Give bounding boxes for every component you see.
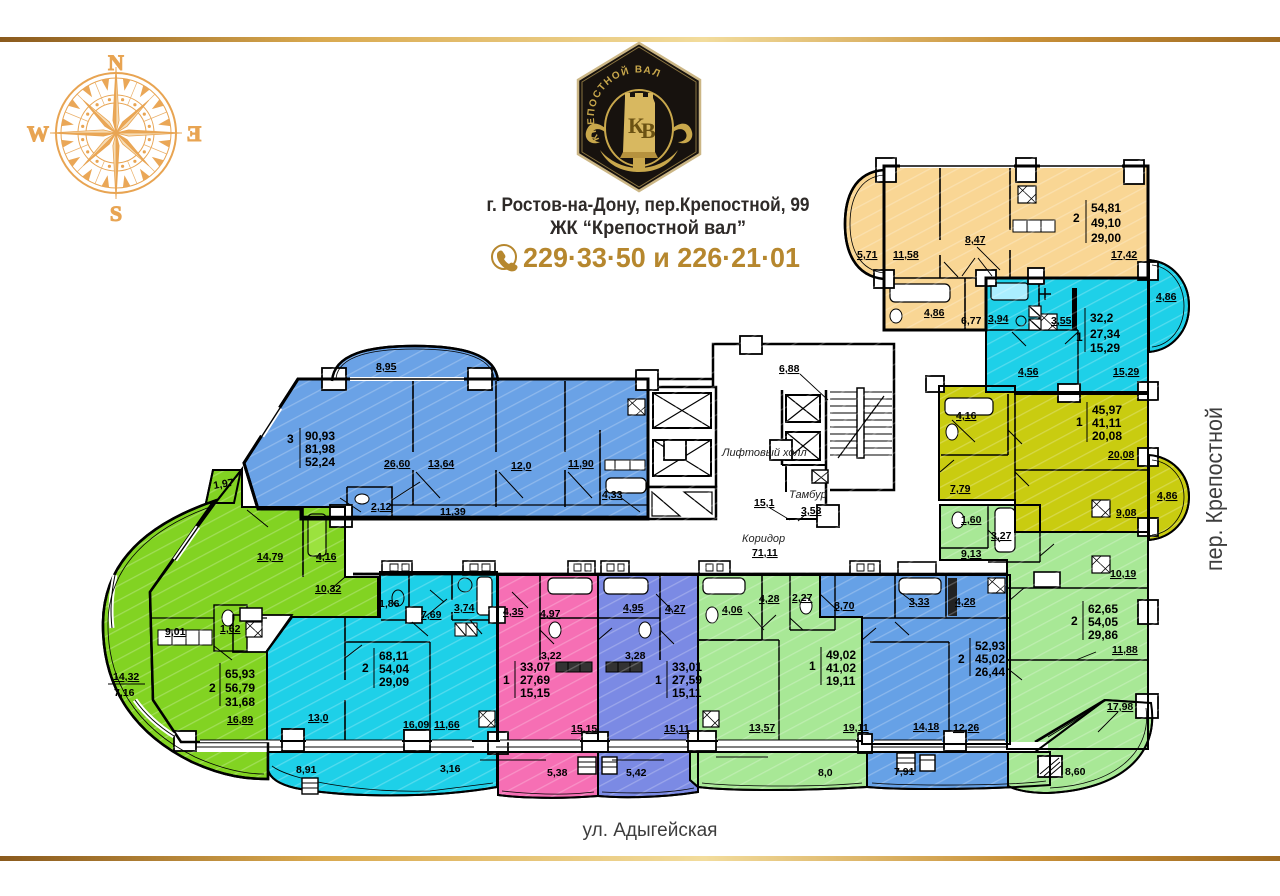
svg-text:8,95: 8,95 xyxy=(376,361,397,373)
svg-text:4,28: 4,28 xyxy=(759,593,780,605)
svg-text:7,91: 7,91 xyxy=(894,766,915,778)
svg-text:4,16: 4,16 xyxy=(956,410,977,422)
svg-text:8,70: 8,70 xyxy=(834,600,855,612)
svg-text:19,11: 19,11 xyxy=(843,722,869,734)
svg-text:12,0: 12,0 xyxy=(511,460,532,472)
svg-text:2,12: 2,12 xyxy=(371,501,392,513)
svg-text:3,94: 3,94 xyxy=(988,313,1009,325)
svg-text:3,33: 3,33 xyxy=(909,596,930,608)
svg-text:В: В xyxy=(641,118,656,143)
svg-text:9,01: 9,01 xyxy=(165,626,186,638)
svg-text:10,19: 10,19 xyxy=(1110,568,1136,580)
svg-text:11,90: 11,90 xyxy=(568,458,594,470)
svg-text:68,11: 68,11 xyxy=(379,649,409,663)
svg-text:4,33: 4,33 xyxy=(602,489,623,501)
svg-text:15,11: 15,11 xyxy=(664,723,690,735)
svg-text:41,11: 41,11 xyxy=(1092,416,1122,430)
svg-text:49,02: 49,02 xyxy=(826,648,856,662)
svg-text:11,39: 11,39 xyxy=(440,506,466,518)
svg-text:8,47: 8,47 xyxy=(965,234,986,246)
svg-text:29,86: 29,86 xyxy=(1088,628,1118,642)
svg-text:14,79: 14,79 xyxy=(257,551,283,563)
svg-text:27,59: 27,59 xyxy=(672,673,702,687)
svg-text:19,11: 19,11 xyxy=(826,674,856,688)
svg-text:3,55: 3,55 xyxy=(1051,315,1072,327)
svg-text:4,86: 4,86 xyxy=(924,307,945,319)
svg-text:15,11: 15,11 xyxy=(672,686,702,700)
svg-text:4,86: 4,86 xyxy=(1156,291,1177,303)
svg-text:4,86: 4,86 xyxy=(1157,490,1178,502)
svg-text:11,58: 11,58 xyxy=(893,249,919,261)
svg-text:90,93: 90,93 xyxy=(305,429,335,443)
svg-text:54,81: 54,81 xyxy=(1091,201,1121,215)
svg-text:1,60: 1,60 xyxy=(961,514,982,526)
svg-text:3,53: 3,53 xyxy=(801,505,822,517)
svg-text:3,27: 3,27 xyxy=(991,530,1012,542)
svg-text:15,15: 15,15 xyxy=(571,723,597,735)
svg-text:11,88: 11,88 xyxy=(1112,644,1138,656)
svg-text:1: 1 xyxy=(809,659,816,673)
svg-text:2: 2 xyxy=(362,661,369,675)
svg-text:20,08: 20,08 xyxy=(1092,429,1122,443)
svg-text:W: W xyxy=(27,121,49,146)
svg-text:4,06: 4,06 xyxy=(722,604,743,616)
svg-text:71,11: 71,11 xyxy=(752,547,778,559)
svg-text:7,16: 7,16 xyxy=(114,687,135,699)
svg-text:8,0: 8,0 xyxy=(818,767,833,779)
svg-text:6,88: 6,88 xyxy=(779,363,800,375)
svg-text:17,98: 17,98 xyxy=(1107,701,1133,713)
svg-text:3,28: 3,28 xyxy=(625,650,646,662)
svg-text:1,62: 1,62 xyxy=(220,623,241,635)
svg-text:8,60: 8,60 xyxy=(1065,766,1086,778)
svg-text:54,04: 54,04 xyxy=(379,662,409,676)
svg-text:N: N xyxy=(108,50,124,75)
svg-text:26,44: 26,44 xyxy=(975,665,1005,679)
svg-text:27,69: 27,69 xyxy=(520,673,550,687)
svg-text:4,97: 4,97 xyxy=(540,608,561,620)
svg-text:27,34: 27,34 xyxy=(1090,327,1120,341)
svg-text:31,68: 31,68 xyxy=(225,695,255,709)
svg-text:52,24: 52,24 xyxy=(305,455,335,469)
svg-text:32,2: 32,2 xyxy=(1090,311,1114,325)
svg-text:7,79: 7,79 xyxy=(950,483,971,495)
svg-text:62,65: 62,65 xyxy=(1088,602,1118,616)
svg-text:29,00: 29,00 xyxy=(1091,231,1121,245)
svg-text:16,09: 16,09 xyxy=(403,719,429,731)
svg-text:2: 2 xyxy=(958,652,965,666)
svg-text:4,28: 4,28 xyxy=(955,596,976,608)
svg-text:4,95: 4,95 xyxy=(623,602,644,614)
svg-text:Лифтовый холл: Лифтовый холл xyxy=(721,447,807,459)
svg-text:4,56: 4,56 xyxy=(1018,366,1039,378)
svg-text:5,38: 5,38 xyxy=(547,767,568,779)
svg-text:2: 2 xyxy=(1073,211,1080,225)
svg-text:ул. Адыгейская: ул. Адыгейская xyxy=(583,820,718,841)
svg-text:13,64: 13,64 xyxy=(428,458,454,470)
svg-text:г. Ростов-на-Дону, пер.Крепост: г. Ростов-на-Дону, пер.Крепостной, 99 xyxy=(487,195,810,216)
svg-text:56,79: 56,79 xyxy=(225,681,255,695)
svg-text:45,02: 45,02 xyxy=(975,652,1005,666)
svg-text:26,60: 26,60 xyxy=(384,458,410,470)
svg-text:33,01: 33,01 xyxy=(672,660,702,674)
svg-text:Коридор: Коридор xyxy=(742,533,785,545)
svg-text:10,32: 10,32 xyxy=(315,583,341,595)
svg-text:45,97: 45,97 xyxy=(1092,403,1122,417)
svg-text:2: 2 xyxy=(1071,614,1078,628)
svg-text:9,13: 9,13 xyxy=(961,548,982,560)
svg-text:13,0: 13,0 xyxy=(308,712,329,724)
svg-text:11,66: 11,66 xyxy=(434,719,460,731)
svg-text:1: 1 xyxy=(655,673,662,687)
svg-text:S: S xyxy=(110,201,122,226)
svg-text:5,42: 5,42 xyxy=(626,767,647,779)
svg-text:52,93: 52,93 xyxy=(975,639,1005,653)
svg-text:81,98: 81,98 xyxy=(305,442,335,456)
svg-text:6,77: 6,77 xyxy=(961,315,982,327)
svg-text:3,74: 3,74 xyxy=(454,602,475,614)
svg-text:41,02: 41,02 xyxy=(826,661,856,675)
svg-text:5,71: 5,71 xyxy=(857,249,878,261)
svg-text:15,29: 15,29 xyxy=(1090,341,1120,355)
svg-text:1: 1 xyxy=(1076,415,1083,429)
svg-text:15,29: 15,29 xyxy=(1113,366,1139,378)
svg-text:49,10: 49,10 xyxy=(1091,216,1121,230)
svg-text:4,16: 4,16 xyxy=(316,551,337,563)
svg-text:15,15: 15,15 xyxy=(520,686,550,700)
svg-text:Ǝ: Ǝ xyxy=(187,121,202,146)
svg-text:2: 2 xyxy=(209,681,216,695)
svg-text:4,35: 4,35 xyxy=(503,606,524,618)
svg-text:20,08: 20,08 xyxy=(1108,449,1134,461)
svg-text:13,57: 13,57 xyxy=(749,722,775,734)
svg-text:4,27: 4,27 xyxy=(665,603,686,615)
svg-text:9,08: 9,08 xyxy=(1116,507,1137,519)
svg-text:7,69: 7,69 xyxy=(421,609,442,621)
svg-text:29,09: 29,09 xyxy=(379,675,409,689)
svg-text:ЖК “Крепостной вал”: ЖК “Крепостной вал” xyxy=(549,218,746,239)
svg-text:8,91: 8,91 xyxy=(296,764,317,776)
svg-text:Тамбур: Тамбур xyxy=(789,489,827,501)
svg-text:1: 1 xyxy=(503,673,510,687)
svg-text:14,32: 14,32 xyxy=(113,671,139,683)
svg-text:3,16: 3,16 xyxy=(440,763,461,775)
svg-text:14,18: 14,18 xyxy=(913,721,939,733)
svg-text:1,86: 1,86 xyxy=(379,598,400,610)
svg-text:33,07: 33,07 xyxy=(520,660,550,674)
svg-text:3: 3 xyxy=(287,432,294,446)
svg-text:16,89: 16,89 xyxy=(227,714,253,726)
svg-text:15,1: 15,1 xyxy=(754,497,775,509)
svg-text:12,26: 12,26 xyxy=(953,722,979,734)
svg-text:17,42: 17,42 xyxy=(1111,249,1137,261)
svg-text:65,93: 65,93 xyxy=(225,667,255,681)
svg-text:229·33·50 и 226·21·01: 229·33·50 и 226·21·01 xyxy=(523,242,800,273)
svg-text:2,27: 2,27 xyxy=(792,592,813,604)
svg-text:1: 1 xyxy=(1076,330,1083,344)
svg-text:54,05: 54,05 xyxy=(1088,615,1118,629)
